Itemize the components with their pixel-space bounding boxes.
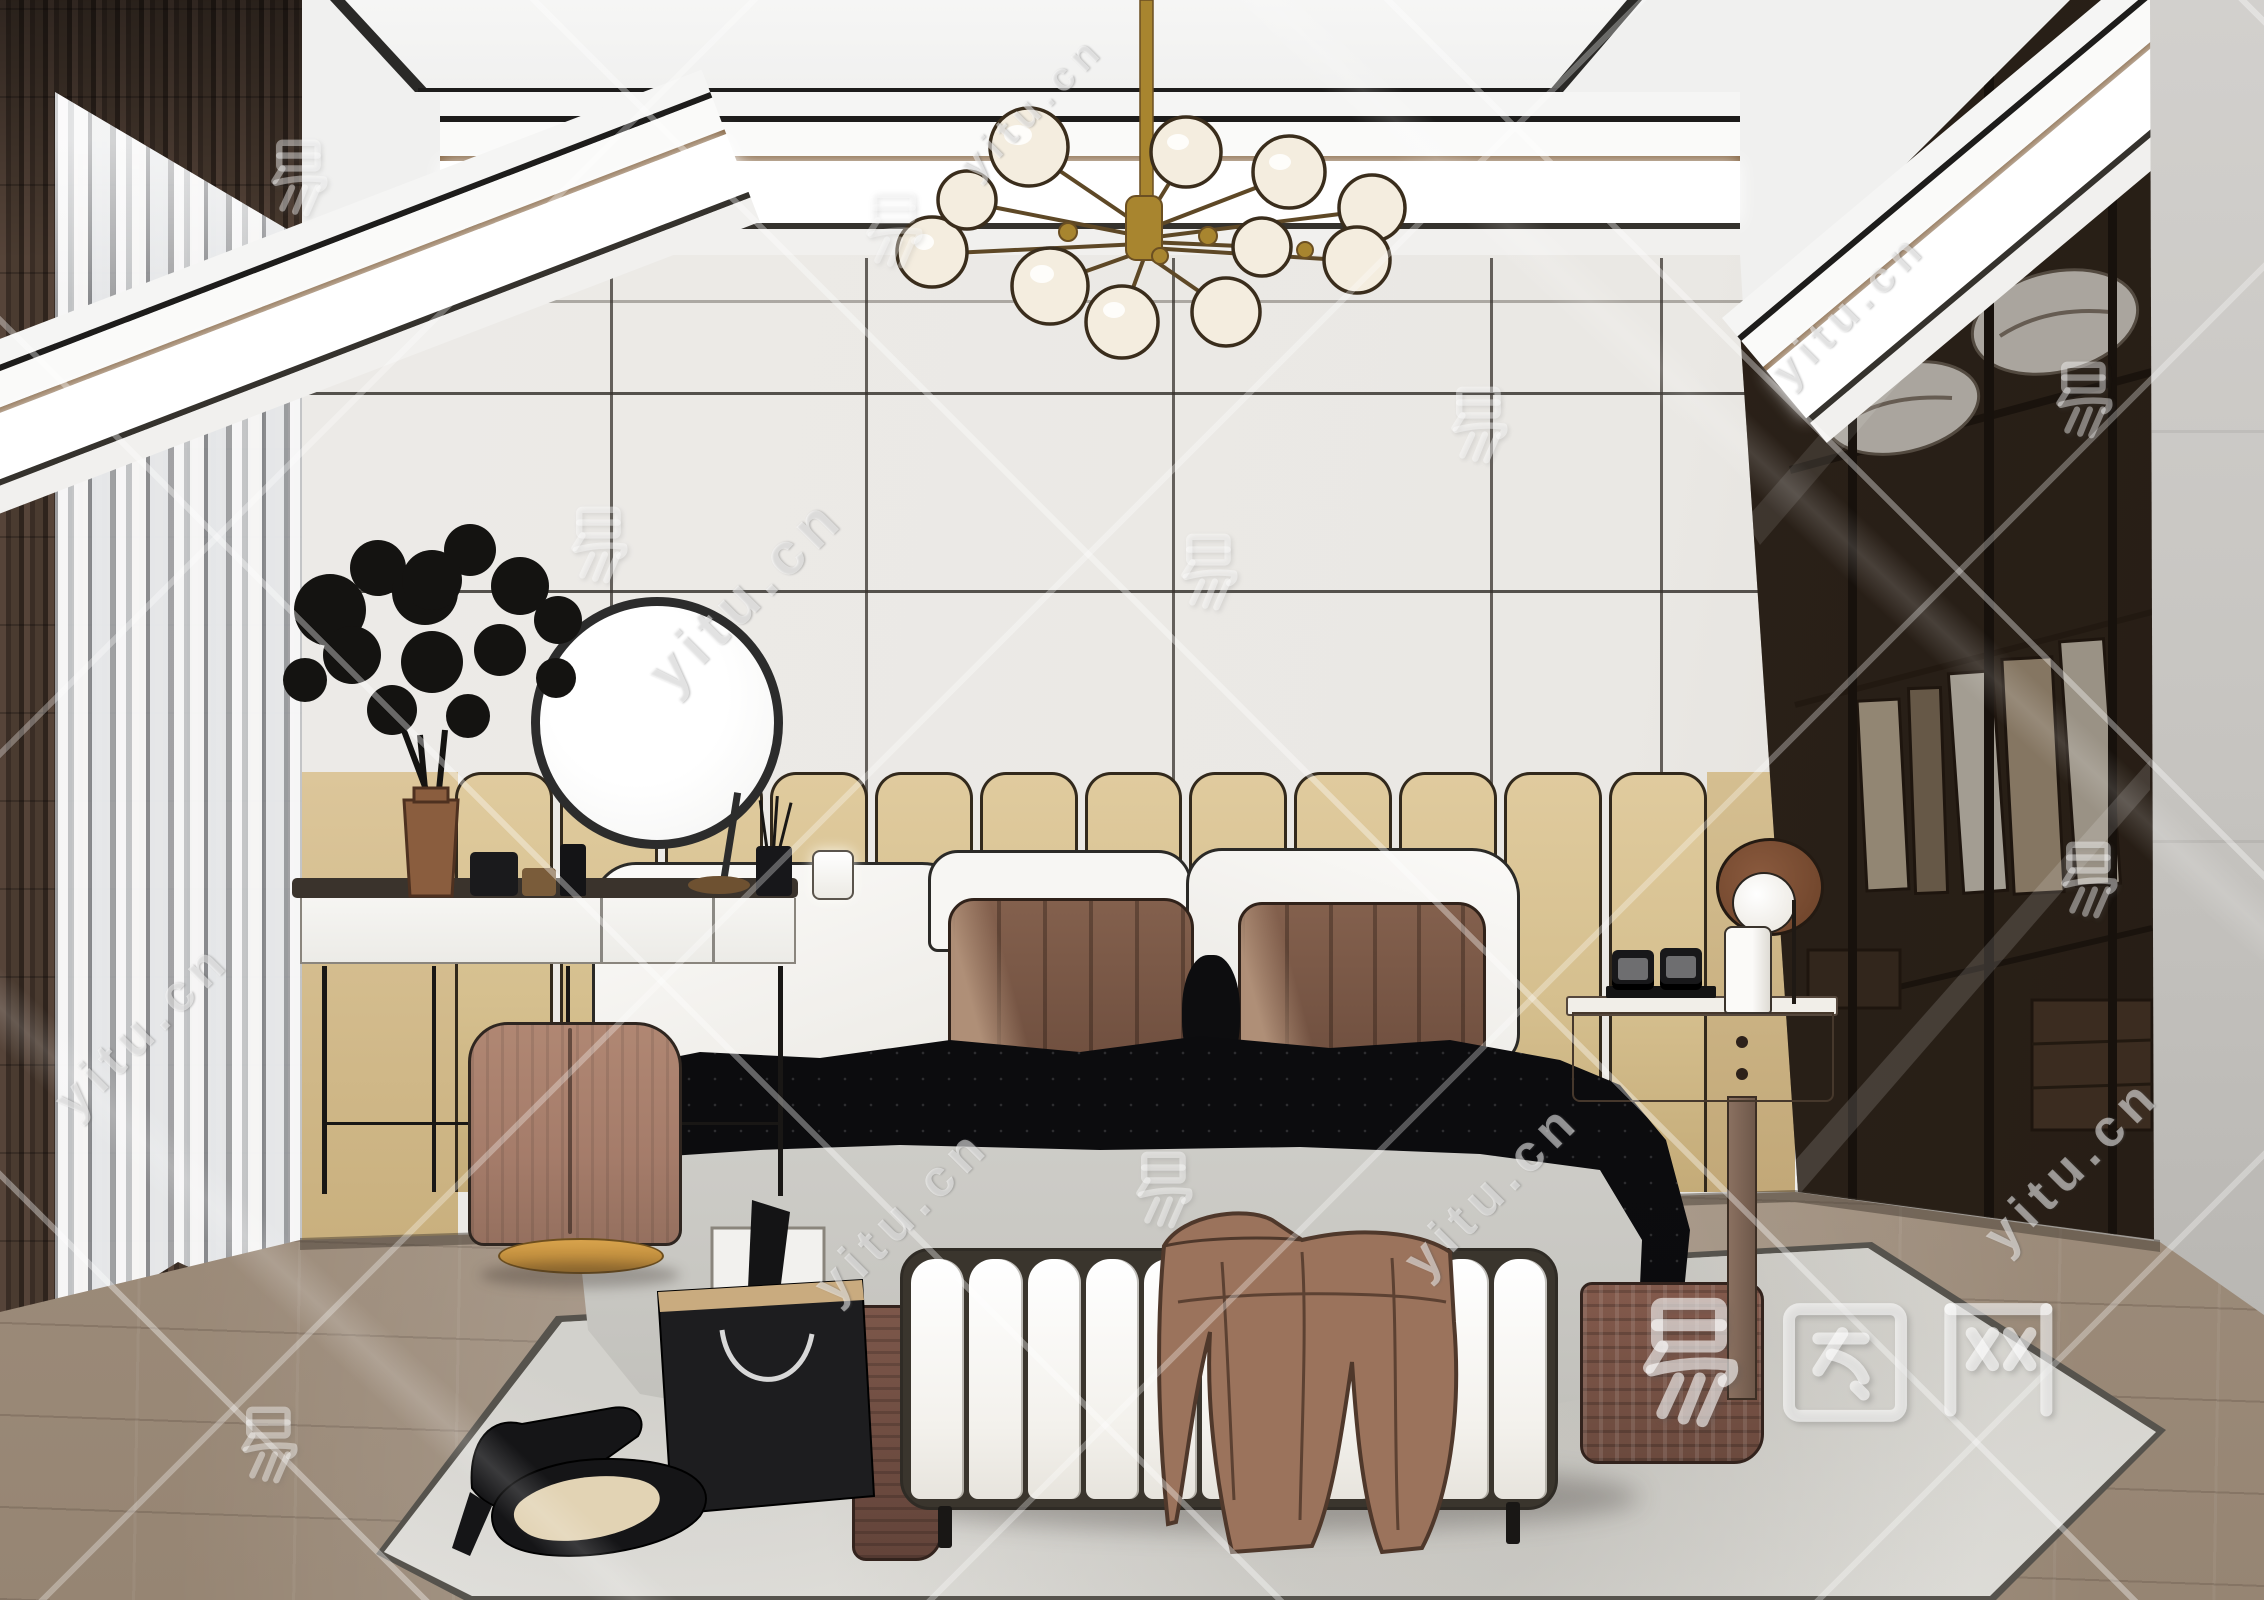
lamp-globe bbox=[1732, 872, 1796, 934]
bench-rib bbox=[911, 1259, 964, 1499]
bench-leg bbox=[1506, 1502, 1520, 1544]
cosmetic-box-black bbox=[470, 852, 518, 896]
watermark-glyph bbox=[230, 1405, 310, 1490]
bench-rib bbox=[1494, 1259, 1547, 1499]
bench-rib bbox=[969, 1259, 1022, 1499]
watermark-glyph bbox=[1170, 532, 1250, 617]
nightstand-knob[interactable] bbox=[1736, 1036, 1748, 1048]
glasses-lens bbox=[1618, 958, 1648, 980]
lamp-base-cylinder[interactable] bbox=[1724, 926, 1772, 1014]
bench-leg bbox=[938, 1506, 952, 1548]
bench-rib bbox=[1028, 1259, 1081, 1499]
bedroom-render: yitu.cn yitu.cn yitu.cn yitu.cn yitu.cn … bbox=[0, 0, 2264, 1600]
cosmetic-jar-bronze bbox=[522, 868, 556, 896]
mini-lamp-white bbox=[812, 850, 854, 900]
vanity-leg bbox=[432, 966, 436, 1192]
vanity-leg bbox=[322, 966, 327, 1194]
watermark-glyph bbox=[2045, 360, 2125, 445]
watermark-glyph bbox=[560, 505, 640, 590]
cosmetic-bottle-black bbox=[560, 844, 586, 896]
chandelier-stem bbox=[1140, 0, 1153, 200]
watermark-logo bbox=[1625, 1295, 2065, 1435]
lamp-stand-rod bbox=[1792, 900, 1796, 1004]
watermark-glyph bbox=[855, 190, 935, 275]
glasses-case bbox=[1660, 948, 1702, 990]
watermark-glyph bbox=[2050, 840, 2130, 925]
wall-seam-faint bbox=[2140, 840, 2264, 843]
glasses-case bbox=[1612, 950, 1654, 990]
chandelier bbox=[850, 0, 1430, 370]
watermark-glyph bbox=[260, 138, 340, 223]
watermark-glyph bbox=[1440, 385, 1520, 470]
brush-cup bbox=[756, 846, 792, 896]
watermark-glyph bbox=[1125, 1150, 1205, 1235]
nightstand[interactable] bbox=[1572, 1012, 1834, 1102]
drawer-divider bbox=[712, 898, 715, 962]
shoes-and-bag bbox=[420, 1180, 900, 1600]
vanity-leg bbox=[778, 966, 783, 1196]
nightstand-knob[interactable] bbox=[1736, 1068, 1748, 1080]
bench-rib bbox=[1086, 1259, 1139, 1499]
wall-seam bbox=[300, 392, 1760, 395]
tray-bronze bbox=[688, 876, 750, 894]
wall-seam-faint bbox=[2140, 430, 2264, 433]
glasses-lens bbox=[1666, 956, 1696, 978]
